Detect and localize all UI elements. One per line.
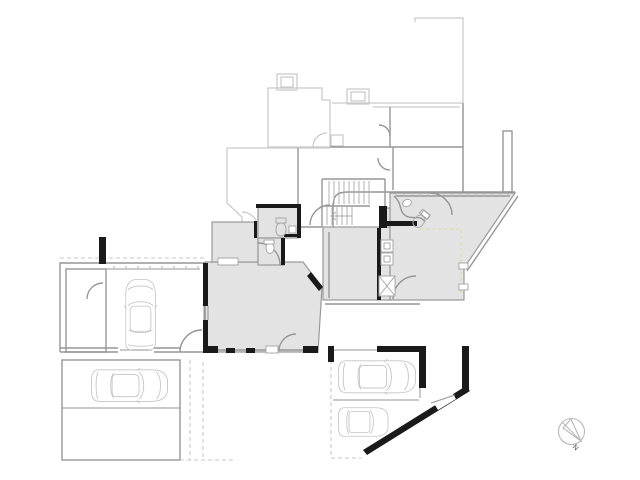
upper-left-boundary xyxy=(227,148,242,228)
upper-balcony xyxy=(331,135,343,146)
wc-wall-top xyxy=(256,204,301,208)
parking-sedan xyxy=(339,359,416,394)
garage-car-part xyxy=(128,345,153,347)
carport-car-part xyxy=(139,372,144,399)
garage-car-part xyxy=(130,306,151,331)
floor-plan-canvas: N xyxy=(0,0,640,480)
storage-room xyxy=(66,269,106,352)
parking-sedan-part xyxy=(387,363,392,390)
stair-arrow xyxy=(331,212,352,220)
carport-car-part xyxy=(96,372,98,399)
parking-wall-mid xyxy=(419,346,426,388)
upper-roof-edge xyxy=(415,18,463,192)
storage-door-arc xyxy=(87,283,103,299)
upper-room xyxy=(268,88,330,147)
carport-car-part xyxy=(112,375,139,397)
parking-stub xyxy=(328,346,334,362)
living-wall-left-a xyxy=(203,263,208,306)
parking-compact-part xyxy=(339,408,389,437)
front-room xyxy=(212,222,258,262)
terrace-door-frame-1 xyxy=(459,263,468,269)
fridge-inner xyxy=(384,256,390,262)
door-arc-a xyxy=(379,125,390,136)
carport-car xyxy=(92,368,168,403)
living-mullion-2 xyxy=(246,348,255,353)
oven-inner xyxy=(384,243,390,249)
parking-compact-part xyxy=(370,410,373,434)
front-room-window xyxy=(218,258,238,265)
wc-sink xyxy=(289,226,296,233)
terrace-door-frame-2 xyxy=(459,284,468,290)
wc-wall-corner xyxy=(284,234,301,237)
utility-shelf xyxy=(264,240,274,244)
living-corner-sw xyxy=(203,346,218,353)
garage-car-part xyxy=(128,286,153,290)
floor-plan-page: N xyxy=(0,0,640,480)
terrace-bar xyxy=(503,131,512,192)
wc-wall-left xyxy=(254,221,257,238)
living-mullion-1 xyxy=(226,348,235,353)
garage-car-part xyxy=(128,302,153,306)
living-corner-se xyxy=(303,346,318,353)
parking-wall-top xyxy=(377,346,423,352)
living-room xyxy=(205,262,322,352)
stair-black-wall xyxy=(379,206,387,228)
chimney-1-inner xyxy=(281,77,293,87)
gate-gap xyxy=(435,394,456,410)
garage-outline xyxy=(60,263,205,352)
parking-sedan-part xyxy=(359,366,386,388)
chimney-2-inner xyxy=(351,92,365,101)
parking-sedan-part xyxy=(343,363,345,390)
terrace xyxy=(390,193,515,300)
parking-sedan-part xyxy=(404,363,408,390)
carport-car-part xyxy=(156,372,160,399)
living-window-frame xyxy=(266,346,278,353)
door-arc-b xyxy=(378,158,390,170)
room-fills xyxy=(205,193,515,352)
parking-wall-right xyxy=(462,346,469,390)
wc-wall-right xyxy=(297,204,301,238)
compass: N xyxy=(559,419,585,453)
parking-compact-part xyxy=(349,412,370,433)
utility-wall xyxy=(281,238,285,265)
garage-door-arc xyxy=(180,330,202,352)
parking-compact xyxy=(339,408,389,437)
chimney-2 xyxy=(347,89,369,104)
garage-car xyxy=(124,279,157,350)
carport xyxy=(62,360,180,460)
compass-needle xyxy=(562,422,581,441)
upper-room-door-arc xyxy=(313,133,327,147)
garage-wall-stub xyxy=(99,237,106,264)
